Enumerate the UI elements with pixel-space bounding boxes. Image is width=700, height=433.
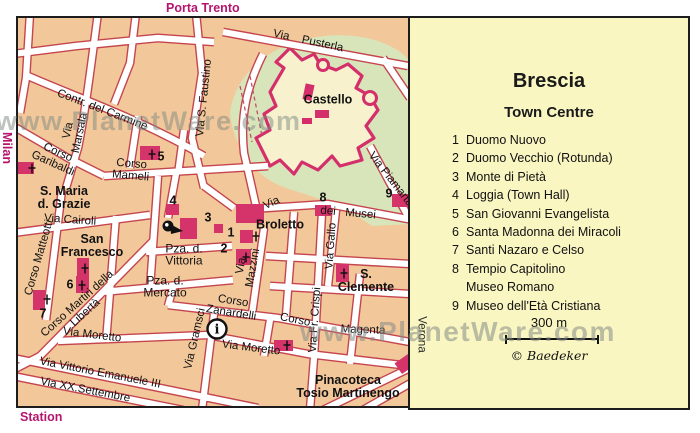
poi-number-marker: 8 [320, 192, 327, 205]
place-name-label: S. Maria d. Grazie [38, 185, 91, 211]
scale-bar [505, 335, 599, 344]
milan-label: Milan [0, 126, 14, 170]
legend-item: 8Tempio Capitolino [446, 260, 680, 278]
street-name-label: Via Moretto [221, 339, 281, 358]
legend-item-label: Santa Madonna dei Miracoli [466, 223, 621, 241]
legend-item-label: Duomo Vecchio (Rotunda) [466, 149, 613, 167]
legend-item-number: 4 [446, 186, 459, 204]
place-name-label: San Francesco [61, 233, 124, 259]
legend-item: 3Monte di Pietà [446, 168, 680, 186]
legend-item: 7Santi Nazaro e Celso [446, 241, 680, 259]
street-name-label: Via Piamarta [365, 150, 410, 209]
street-name-label: Via Gallo [324, 222, 339, 269]
street-name-label: Via Mazzini [233, 246, 263, 289]
place-name-label: S. Clemente [338, 268, 394, 294]
legend-item-label: Santi Nazaro e Celso [466, 241, 584, 259]
legend-item-number: 1 [446, 131, 459, 149]
street-name-label: Corso [279, 312, 311, 330]
legend-item: 4Loggia (Town Hall) [446, 186, 680, 204]
legend-item-number: 9 [446, 297, 459, 315]
street-name-label: Magenta [340, 324, 385, 338]
poi-number-marker: 4 [170, 195, 177, 208]
legend-title: Brescia [410, 70, 688, 93]
legend-item: 1Duomo Nuovo [446, 131, 680, 149]
place-name-label: Pinacoteca Tosio Martinengo [296, 374, 399, 400]
legend-item: 2Duomo Vecchio (Rotunda) [446, 149, 680, 167]
legend-item-label: Loggia (Town Hall) [466, 186, 570, 204]
poi-number-marker: 1 [228, 227, 235, 240]
street-name-label: Via S. Faustino [195, 59, 215, 138]
street-name-label: Via [262, 195, 282, 213]
legend-item-number: 2 [446, 149, 459, 167]
legend-list: 1Duomo Nuovo2Duomo Vecchio (Rotunda)3Mon… [446, 131, 680, 315]
poi-number-marker: 3 [205, 212, 212, 225]
verona-label: Verona [415, 312, 428, 358]
place-name-label: Pza. d. Mercato [143, 275, 186, 300]
legend-item-label: Tempio Capitolino [466, 260, 565, 278]
poi-number-marker: 5 [158, 151, 165, 164]
legend-panel: Brescia Town Centre 1Duomo Nuovo2Duomo V… [408, 16, 690, 410]
legend-item: 9Museo dell'Età Cristiana [446, 297, 680, 315]
street-name-label: Via Moretto [62, 326, 122, 345]
legend-item-number: 8 [446, 260, 459, 278]
brescia-map-page: Porta Trento Milan Station [0, 0, 700, 433]
legend-item-label: Museo Romano [466, 278, 554, 296]
legend-item-label: San Giovanni Evangelista [466, 205, 609, 223]
legend-item-number: 5 [446, 205, 459, 223]
legend-item-number: 3 [446, 168, 459, 186]
poi-number-marker: 7 [40, 308, 47, 321]
street-name-label: dei Musei [320, 206, 376, 223]
poi-number-marker: 6 [67, 279, 74, 292]
legend-item-continuation: Museo Romano [446, 278, 680, 296]
city-map: i Contr. del CarmineVia MarsalaVia S. Fa… [16, 16, 410, 408]
legend-item-label: Duomo Nuovo [466, 131, 546, 149]
legend-item-number: 7 [446, 241, 459, 259]
place-name-label: Pza. d. Vittoria [165, 243, 202, 268]
legend-item: 5San Giovanni Evangelista [446, 205, 680, 223]
legend-item-label: Monte di Pietà [466, 168, 546, 186]
place-name-label: Broletto [256, 219, 304, 232]
legend-item-label: Museo dell'Età Cristiana [466, 297, 600, 315]
street-name-label: Via Pusterla [272, 29, 344, 56]
street-name-label: Corso Matteotti [24, 219, 57, 297]
legend-item-number: 6 [446, 223, 459, 241]
station-label: Station [20, 410, 62, 424]
street-name-label: Via Marsala [59, 110, 91, 155]
legend-item: 6Santa Madonna dei Miracoli [446, 223, 680, 241]
poi-number-marker: 9 [386, 188, 393, 201]
street-name-label: Via Fr. Crispi [308, 287, 325, 353]
poi-number-marker: 2 [221, 243, 228, 256]
map-text-layer: Contr. del CarmineVia MarsalaVia S. Faus… [18, 18, 408, 406]
porta-trento-label: Porta Trento [166, 1, 240, 15]
street-name-label: Via Gramsci [183, 307, 209, 371]
legend-item-number-blank [446, 278, 459, 296]
copyright-baedeker: © Baedeker [410, 348, 688, 363]
legend-subtitle: Town Centre [410, 104, 688, 121]
street-name-label: Corso Mameli [111, 157, 150, 184]
scale-label: 300 m [410, 315, 688, 330]
place-name-label: Castello [304, 94, 353, 107]
street-name-label: Corso Zanardelli [205, 292, 259, 324]
